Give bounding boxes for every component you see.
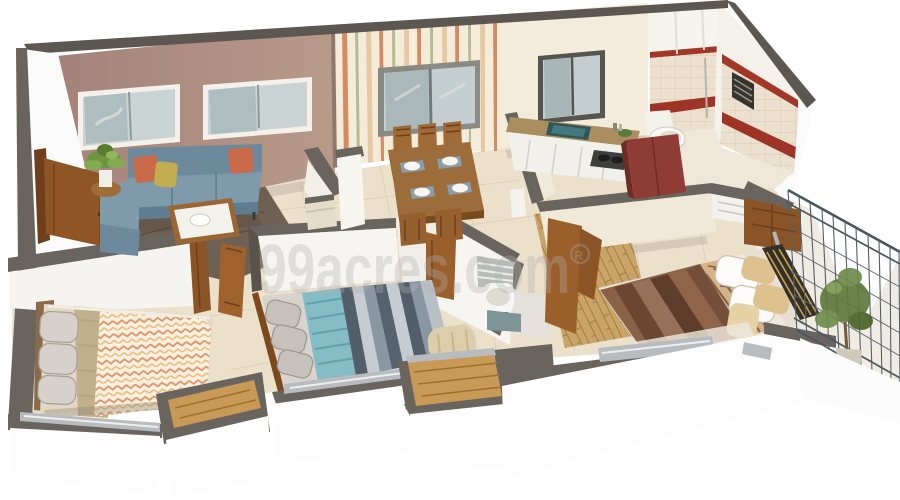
svg-text:R: R	[574, 248, 584, 263]
svg-text:99acres.com: 99acres.com	[258, 230, 570, 308]
